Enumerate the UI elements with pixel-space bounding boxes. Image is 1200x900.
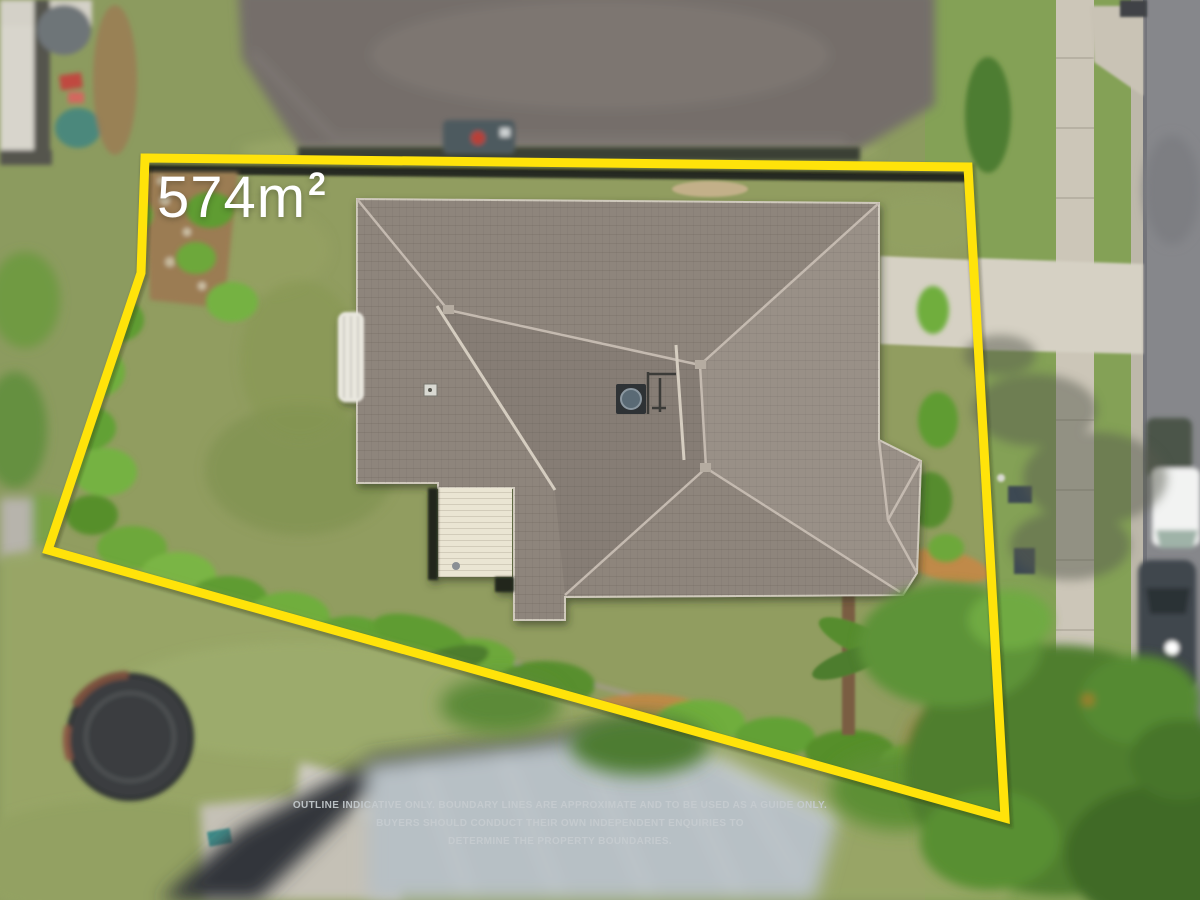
roof-vent: [424, 384, 437, 396]
skylight: [616, 384, 646, 414]
area-value: 574m: [157, 165, 306, 230]
garage: [428, 488, 514, 592]
area-label: 574m2: [157, 168, 327, 227]
disclaimer-line-1: OUTLINE INDICATIVE ONLY. BOUNDARY LINES …: [160, 797, 960, 815]
area-superscript: 2: [308, 166, 327, 202]
disclaimer-line-3: DETERMINE THE PROPERTY BOUNDARIES.: [160, 833, 960, 851]
disclaimer-line-2: BUYERS SHOULD CONDUCT THEIR OWN INDEPEND…: [160, 815, 960, 833]
aerial-property-photo: 574m2 OUTLINE INDICATIVE ONLY. BOUNDARY …: [0, 0, 1200, 900]
drain-grate: [1120, 0, 1147, 17]
trampoline: [67, 675, 192, 799]
road-stain: [1144, 135, 1200, 245]
teal-tent: [55, 108, 101, 148]
top-left-yard: [0, 0, 137, 165]
boundary-disclaimer: OUTLINE INDICATIVE ONLY. BOUNDARY LINES …: [160, 797, 960, 851]
red-toy: [59, 73, 83, 91]
pergola-awning: [338, 312, 364, 402]
neighbor-house-top: [238, 0, 935, 172]
verge-palm: [965, 57, 1011, 173]
dirt-path: [93, 5, 137, 155]
scene-graphic: [0, 0, 1200, 900]
garage-wall-shadow: [428, 488, 438, 580]
gray-tank: [37, 5, 91, 55]
play-equipment: [443, 120, 515, 154]
gravel-patch: [672, 181, 748, 197]
